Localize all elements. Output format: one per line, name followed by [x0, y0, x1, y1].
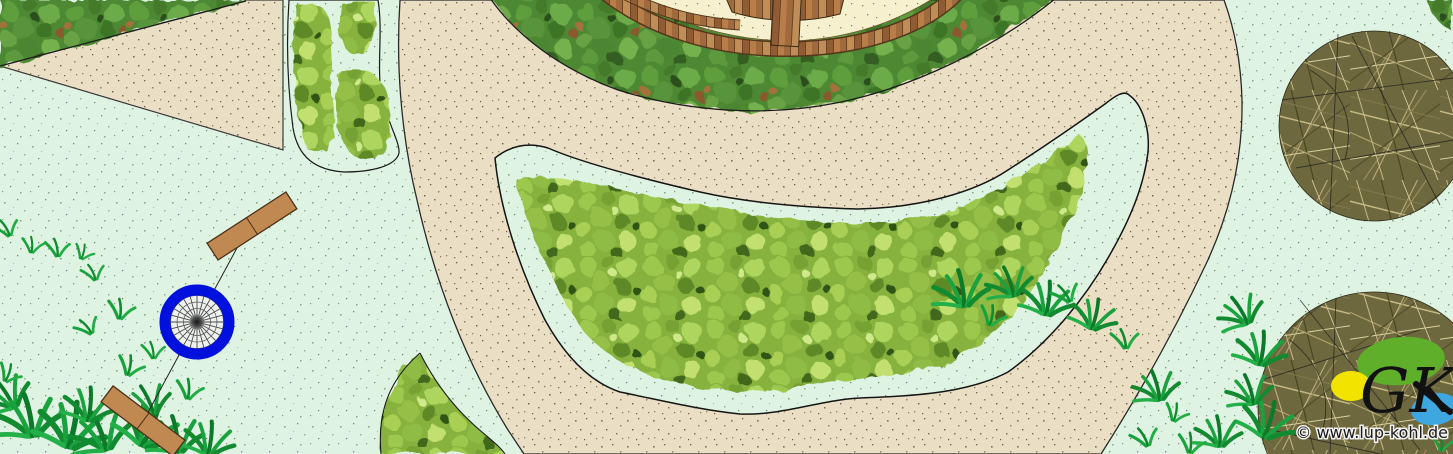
logo-initials: GK	[1360, 354, 1453, 427]
watermark-text: © www.lup-kohl.de	[1295, 423, 1448, 442]
site-plan: GK © www.lup-kohl.de	[0, 0, 1453, 454]
deck-plank	[771, 0, 802, 47]
landscape-plan-viewport: GK © www.lup-kohl.de	[0, 0, 1453, 454]
parasol-pole-top	[190, 315, 205, 330]
parasol-icon	[165, 290, 229, 354]
